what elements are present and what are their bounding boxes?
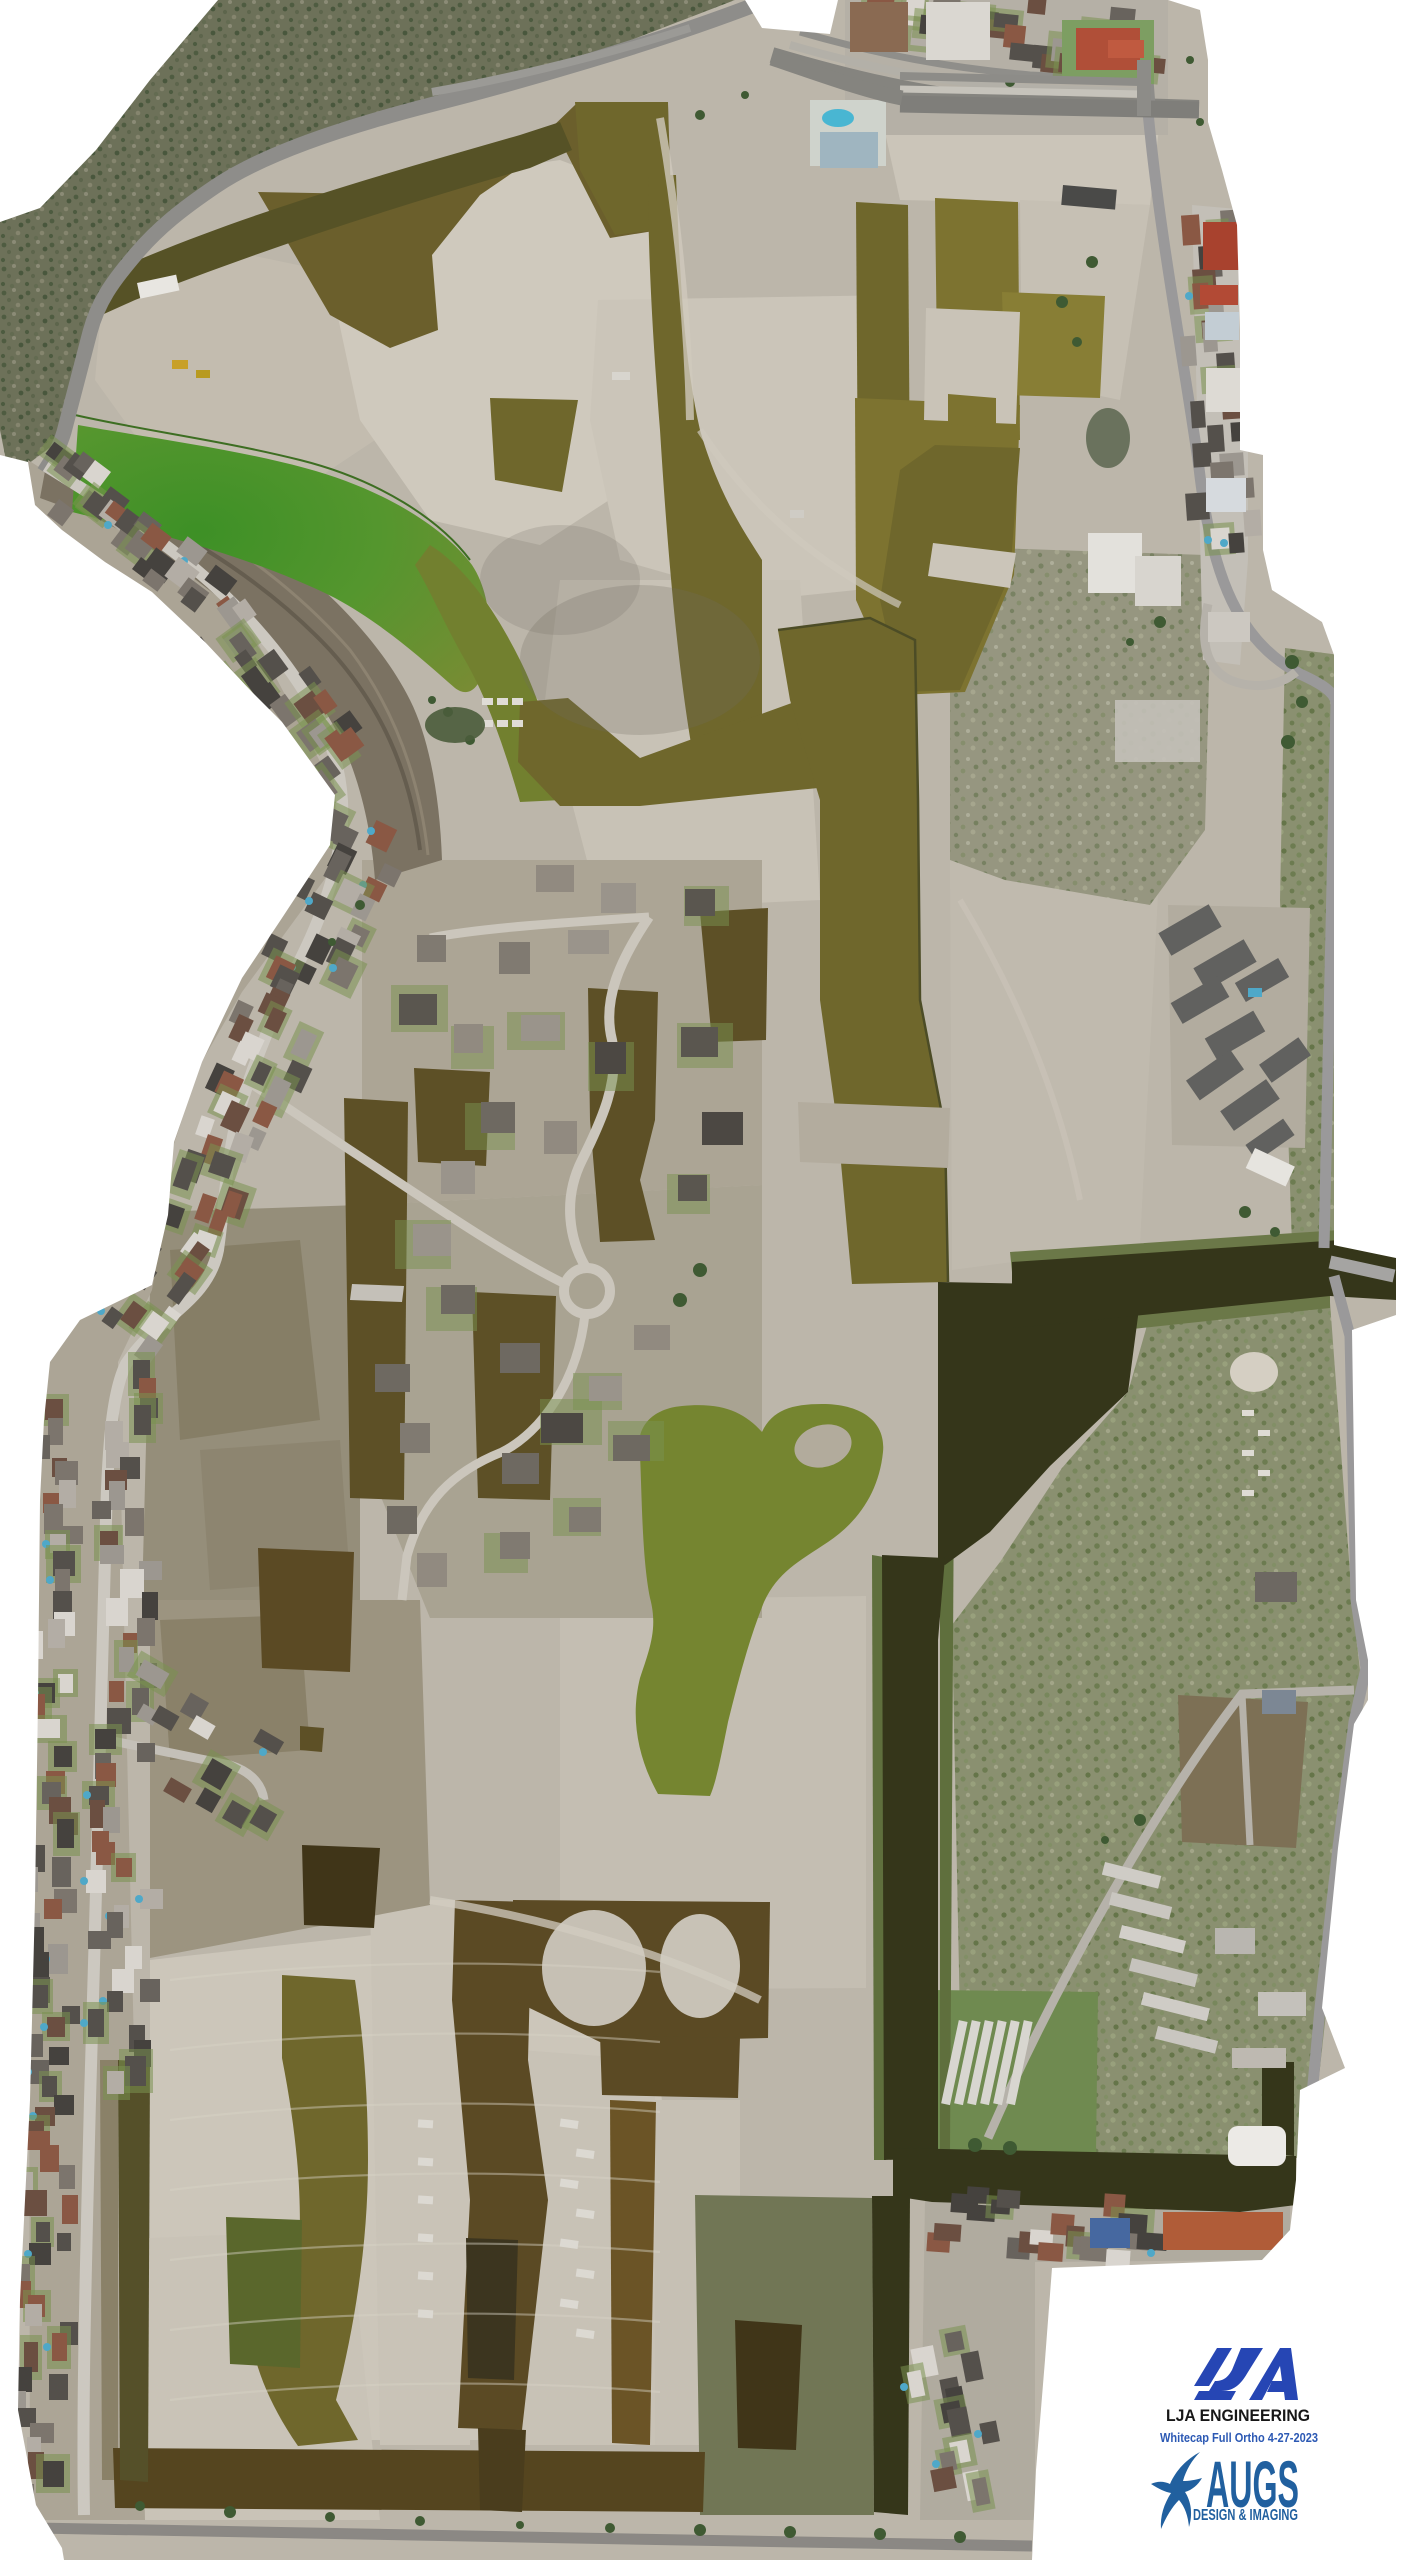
svg-text:Whitecap Full Ortho 4-27-2023: Whitecap Full Ortho 4-27-2023 bbox=[1160, 2431, 1318, 2445]
svg-text:DESIGN & IMAGING: DESIGN & IMAGING bbox=[1193, 2507, 1298, 2524]
svg-text:LJA ENGINEERING: LJA ENGINEERING bbox=[1166, 2406, 1310, 2425]
